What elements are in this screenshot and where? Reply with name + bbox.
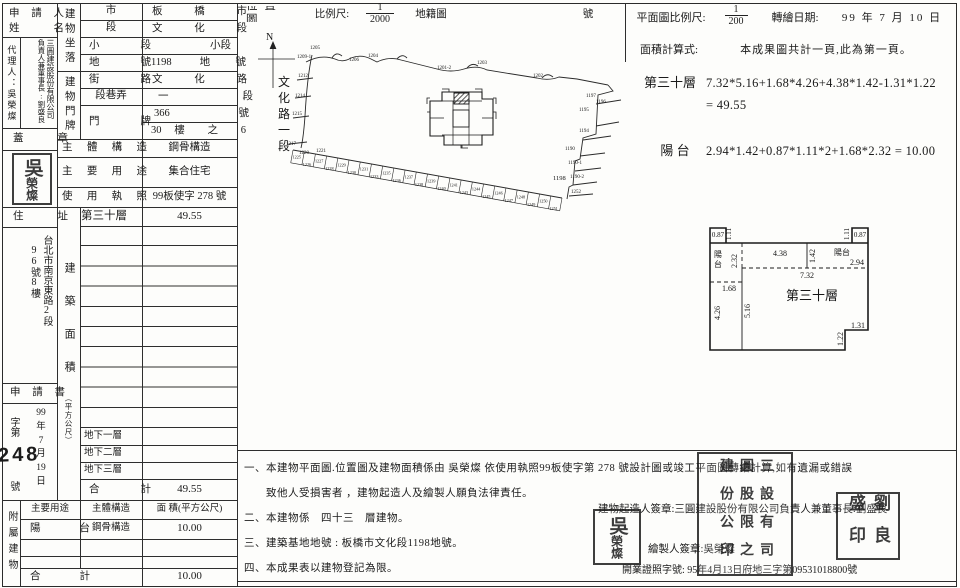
- site-label-city: 市: [80, 3, 142, 20]
- seal-char-right: 吳: [604, 516, 631, 535]
- principal-seal-column: 劉盛: [843, 494, 893, 526]
- map-label: 1204: [368, 54, 379, 59]
- map-label: 1190-2: [570, 175, 584, 180]
- balcony-formula: 2.94*1.42+0.87*1.11*2+1.68*2.32 = 10.00: [706, 144, 935, 159]
- area-total-value: 49.55: [142, 479, 237, 500]
- road-name-char: 路: [278, 106, 290, 121]
- map-label: 0.87: [712, 231, 725, 239]
- map-label: 1201-2: [437, 66, 452, 71]
- door-label-lane: 段巷弄: [80, 88, 142, 105]
- annex-structure: 鋼骨構造: [80, 519, 142, 539]
- plan-scale-label: 平面圖比例尺:: [628, 11, 714, 26]
- map-label: 1217: [286, 142, 297, 147]
- map-label: 陽: [714, 250, 722, 259]
- agent-name: 代理人：吳榮燦: [3, 39, 19, 127]
- redraw-date-label: 轉繪日期:: [764, 11, 826, 26]
- map-label: 1195: [579, 108, 589, 113]
- road-name-char: 一: [278, 123, 290, 137]
- map-label: 7.32: [800, 271, 814, 280]
- map-label: 1202: [533, 74, 544, 79]
- map-label: 1.11: [725, 228, 733, 240]
- site-label-section: 段: [80, 20, 142, 37]
- company-seal-column: 三圓建: [715, 458, 775, 486]
- floor-area: 49.55: [142, 207, 237, 226]
- grid-line: [2, 227, 57, 228]
- door-group-label: 建物門牌: [58, 73, 79, 137]
- road-name-char: 文: [278, 74, 290, 89]
- annex-header-use: 主要用途: [20, 500, 80, 519]
- comb-parcel-label: 1250: [539, 198, 547, 203]
- address-cell: 台北市南京東路2段 96號8樓: [8, 235, 53, 380]
- survey-document: 申 請 人 姓 名 代理人：吳榮燦 三圓建設股份有限公司 負責人兼董事長:劉盛良…: [0, 0, 960, 588]
- comb-parcel-label: 1225: [293, 154, 301, 159]
- map-label: 陽台: [834, 247, 850, 257]
- area-group-label: 建築面積: [62, 262, 75, 394]
- site-group-label: 建物坐落: [58, 6, 79, 68]
- app-number-stamp: 248: [0, 443, 41, 467]
- map-label: 4.26: [713, 306, 722, 320]
- drafter-seal-bottom: 吳 榮燦: [593, 509, 641, 565]
- principal-seal: 劉盛良印: [836, 492, 900, 560]
- redraw-date-value: 99 年 7 月 10 日: [828, 11, 956, 26]
- area-group-unit: （平方公尺）: [64, 394, 73, 445]
- balcony-formula-label: 陽 台: [650, 142, 700, 160]
- comb-parcel-label: 1247: [505, 198, 513, 203]
- annex-total-label: 合 計: [20, 568, 100, 586]
- plan-scale-denominator: 200: [725, 15, 748, 27]
- address-line2: 96號8樓: [28, 245, 40, 380]
- comb-parcel-label: 1238: [415, 182, 423, 187]
- map-label: 1197: [586, 94, 596, 99]
- main-floor-formula-label: 第三十層: [640, 74, 700, 92]
- comb-parcel-label: 1248: [517, 194, 525, 199]
- north-label: N: [266, 32, 273, 43]
- plan-scale-numerator: 1: [734, 4, 739, 15]
- map-label: 1214: [295, 94, 306, 99]
- principal-seal-column: 良印: [843, 526, 893, 558]
- comb-parcel-label: 1245: [482, 194, 490, 199]
- map-label: 第三十層: [786, 288, 838, 303]
- basement-3-label: 地下三層: [84, 462, 142, 479]
- calc-formula-label: 面積計算式:: [628, 43, 710, 58]
- area-group-label-inner: 建築面積 （平方公尺）: [62, 207, 75, 500]
- floor-plan-drawing: 0.871.111.110.874.381.42陽台2.94陽台2.321.68…: [660, 210, 940, 385]
- comb-parcel-label: 1231: [360, 166, 368, 171]
- map-label: 1190-1: [568, 161, 582, 166]
- number-suffix-label: 號: [580, 8, 596, 22]
- map-label: 1.22: [836, 332, 845, 346]
- map-label: 1.42: [808, 249, 817, 263]
- use-license-label: 使 用 執 照: [57, 187, 152, 207]
- app-number-prefix: 字第: [6, 408, 20, 446]
- site-value-subsection: 小段: [142, 37, 231, 54]
- location-map-title: 位 置 圖: [246, 6, 290, 22]
- map-line: [560, 198, 562, 211]
- drafter-seal: 吳 榮燦: [12, 153, 52, 205]
- annex-header-structure: 主體構造: [80, 500, 142, 519]
- map-label: 1.11: [843, 228, 851, 240]
- floor-name: 第三十層: [81, 207, 142, 226]
- app-number-suffix: 號: [6, 478, 20, 494]
- structure-label: 主 體 構 造: [57, 139, 152, 157]
- subject-unit-hatch: [454, 93, 469, 104]
- grid-line: [2, 128, 57, 129]
- cadastral-map-label: 地籍圖: [410, 8, 452, 22]
- use-license-value: 99板使字 278 號: [142, 187, 237, 207]
- comb-parcel-label: 1239: [427, 178, 435, 183]
- map-label: 1209-1: [297, 55, 312, 60]
- company-seal-column: 有限公: [715, 514, 775, 542]
- builder-company-name: 三圓建設股份有限公司: [46, 39, 55, 127]
- map-label: 1196: [596, 100, 606, 105]
- annex-group-label: 附屬建物: [3, 503, 19, 583]
- comb-parcel-label: 1243: [460, 190, 468, 195]
- comb-parcel-label: 1233: [370, 174, 378, 179]
- annex-total-value: 10.00: [142, 568, 237, 586]
- location-scale-label: 比例尺:: [308, 8, 356, 22]
- page-count-note: 本成果圖共計一頁,此為第一頁。: [716, 43, 936, 58]
- seal-chars-left: 榮燦: [24, 177, 41, 201]
- comb-parcel-label: 1235: [382, 170, 390, 175]
- grid-line: [237, 450, 957, 451]
- comb-parcel-label: 1236: [392, 178, 400, 183]
- map-label: 1.31: [851, 321, 865, 330]
- map-label: 1252: [571, 190, 582, 195]
- structure-value: 鋼骨構造: [142, 139, 237, 157]
- seal-chars-left: 榮燦: [609, 535, 626, 559]
- comb-parcel-label: 1230: [348, 170, 356, 175]
- comb-parcel-label: 1241: [449, 182, 457, 187]
- main-use-value: 集合住宅: [142, 157, 237, 187]
- map-label: 1212: [298, 74, 309, 79]
- comb-parcel-label: 1237: [405, 174, 413, 179]
- comb-parcel-label: 1246: [494, 190, 502, 195]
- grid-line: [20, 539, 237, 540]
- map-label: 5.16: [743, 304, 752, 318]
- plan-scale-fraction: 1 200: [716, 4, 756, 27]
- grid-line: [2, 37, 57, 38]
- app-date-part: 年: [36, 421, 46, 435]
- builder-company-cell: 三圓建設股份有限公司 負責人兼董事長:劉盛良: [21, 39, 56, 127]
- comb-parcel-label: 1249: [527, 202, 535, 207]
- main-floor-formula: 7.32*5.16+1.68*4.26+4.38*1.42-1.31*1.22: [706, 76, 936, 91]
- scale-denominator: 2000: [366, 13, 394, 25]
- grid-line: [20, 556, 237, 557]
- area-group-label-cell: 建築面積 （平方公尺）: [57, 207, 80, 500]
- main-use-label: 主 要 用 途: [57, 157, 152, 187]
- map-label: 1203: [477, 61, 488, 66]
- map-label: 台: [714, 259, 722, 269]
- seal-char-right: 吳: [19, 158, 46, 177]
- company-seal-column: 司之印: [715, 542, 775, 570]
- map-label: 1221: [316, 149, 327, 154]
- comb-parcel-label: 1229: [337, 162, 345, 167]
- grid-line: [2, 403, 57, 404]
- comb-parcel-label: 1227: [315, 158, 323, 163]
- empty-area-rows: [80, 226, 237, 428]
- scale-numerator: 1: [378, 2, 383, 13]
- comb-parcel-label: 1244: [472, 186, 481, 191]
- map-label: 2.32: [730, 254, 739, 268]
- map-label: 1198: [553, 175, 566, 182]
- map-label: 1205: [310, 46, 321, 51]
- basement-2-label: 地下二層: [84, 445, 142, 462]
- comb-parcel-label: 1226: [303, 162, 311, 167]
- map-label: 1194: [579, 129, 589, 134]
- builder-principal: 負責人兼董事長:劉盛良: [36, 39, 45, 127]
- grid-line: [237, 581, 957, 582]
- location-map: N文化路一段12051209-1120612041201-21203120212…: [237, 28, 625, 240]
- map-label: 1206: [349, 58, 360, 63]
- annex-area: 10.00: [142, 519, 237, 539]
- map-label: 0.87: [854, 231, 867, 239]
- company-seal-column: 設股份: [715, 486, 775, 514]
- map-label: 2.94: [850, 258, 864, 267]
- location-scale-fraction: 1 2000: [362, 2, 398, 25]
- company-seal: 三圓建設股份有限公司之印: [697, 452, 793, 576]
- map-label: 1215: [292, 112, 303, 117]
- road-name-char: 化: [278, 91, 290, 105]
- comb-parcel-label: 1228: [325, 166, 333, 171]
- comb-parcel-label: 1251: [549, 206, 557, 211]
- annex-header-area: 面 積(平方公尺): [142, 500, 237, 519]
- grid-line: [2, 150, 57, 151]
- map-label: 1.68: [722, 284, 736, 293]
- app-date-part: 日: [36, 476, 46, 490]
- comb-parcel-label: 1240: [437, 186, 445, 191]
- map-label: 4.38: [773, 249, 787, 258]
- basement-1-label: 地下一層: [84, 428, 142, 445]
- app-date-part: 99: [36, 407, 46, 421]
- main-floor-result: = 49.55: [706, 98, 746, 113]
- site-value-city: 板 橋 市: [142, 3, 257, 20]
- map-label: 1190: [565, 147, 575, 152]
- grid-line: [625, 3, 626, 62]
- address-line1: 台北市南京東路2段: [41, 235, 53, 380]
